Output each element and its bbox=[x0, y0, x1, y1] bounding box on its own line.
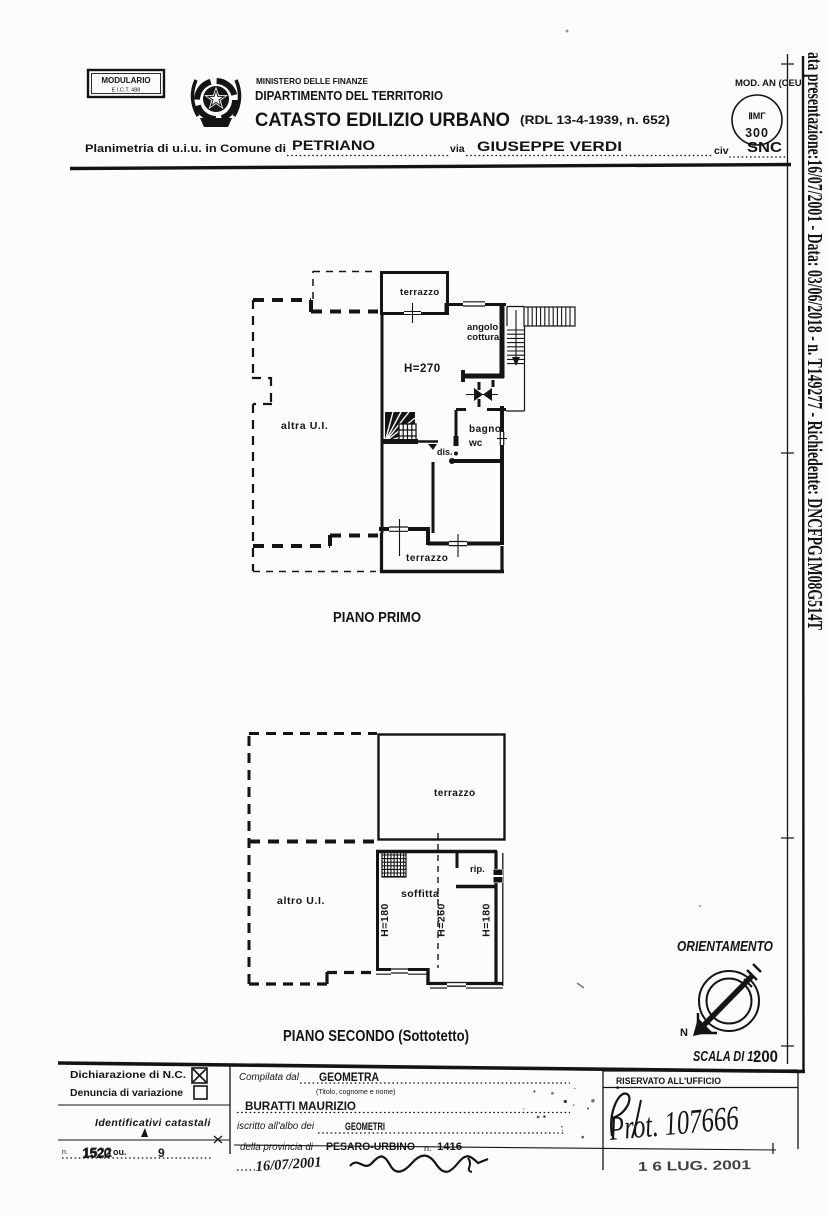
svg-text:altra U.I.: altra U.I. bbox=[281, 420, 328, 432]
svg-text:cottura: cottura bbox=[467, 332, 500, 343]
svg-text:H=260: H=260 bbox=[436, 903, 448, 937]
svg-text:BURATTI MAURIZIO: BURATTI MAURIZIO bbox=[245, 1099, 356, 1113]
svg-text:1 6 LUG. 2001: 1 6 LUG. 2001 bbox=[638, 1157, 751, 1174]
svg-text:E I.C.T. 488: E I.C.T. 488 bbox=[112, 88, 141, 94]
svg-text:MINISTERO DELLE FINANZE: MINISTERO DELLE FINANZE bbox=[256, 76, 368, 86]
svg-text:SNC: SNC bbox=[747, 139, 782, 156]
svg-text:H=180: H=180 bbox=[481, 903, 493, 937]
svg-text:(Titolo, cognome e nome): (Titolo, cognome e nome) bbox=[316, 1089, 396, 1096]
svg-text:1522: 1522 bbox=[83, 1145, 112, 1160]
svg-text:PETRIANO: PETRIANO bbox=[292, 138, 375, 153]
svg-text:RISERVATO ALL'UFFICIO: RISERVATO ALL'UFFICIO bbox=[616, 1076, 721, 1087]
svg-text:Planimetria di u.i.u. in Comun: Planimetria di u.i.u. in Comune di bbox=[85, 143, 286, 155]
svg-text:ou.: ou. bbox=[113, 1147, 127, 1157]
svg-text:wc: wc bbox=[468, 438, 483, 449]
svg-text:soffitta: soffitta bbox=[401, 888, 439, 900]
svg-text:Compilata dal: Compilata dal bbox=[239, 1072, 300, 1083]
svg-text:dis.: dis. bbox=[437, 447, 453, 457]
svg-text:GIUSEPPE VERDI: GIUSEPPE VERDI bbox=[477, 139, 622, 154]
svg-text:della provincia di: della provincia di bbox=[240, 1142, 314, 1153]
svg-text:200: 200 bbox=[753, 1047, 778, 1066]
svg-text:Identificativi catastali: Identificativi catastali bbox=[95, 1117, 211, 1129]
svg-text:terrazzo: terrazzo bbox=[400, 287, 440, 298]
svg-text:rip.: rip. bbox=[470, 864, 485, 875]
svg-text:ata presentazione:16/07/2001 -: ata presentazione:16/07/2001 - Data: 03/… bbox=[803, 52, 827, 630]
svg-text:16/07/2001: 16/07/2001 bbox=[255, 1154, 322, 1175]
svg-text:altro U.I.: altro U.I. bbox=[277, 895, 325, 907]
svg-text:PIANO SECONDO (Sottotetto): PIANO SECONDO (Sottotetto) bbox=[283, 1028, 469, 1045]
svg-text:MODULARIO: MODULARIO bbox=[101, 76, 150, 85]
svg-text:terrazzo: terrazzo bbox=[434, 788, 476, 799]
svg-text:H=270: H=270 bbox=[404, 363, 441, 375]
svg-text:ⅡΜΓ: ⅡΜΓ bbox=[748, 111, 766, 121]
svg-text:DIPARTIMENTO DEL TERRITORIO: DIPARTIMENTO DEL TERRITORIO bbox=[255, 88, 443, 103]
svg-text:H=180: H=180 bbox=[379, 903, 391, 937]
svg-text:300: 300 bbox=[745, 126, 769, 140]
svg-text:iscritto all'albo dei: iscritto all'albo dei bbox=[237, 1121, 315, 1132]
svg-text:MOD. AN (CEU: MOD. AN (CEU bbox=[735, 78, 802, 89]
svg-text:9: 9 bbox=[158, 1146, 165, 1160]
svg-text:(RDL 13-4-1939, n. 652): (RDL 13-4-1939, n. 652) bbox=[520, 115, 670, 127]
svg-text:civ: civ bbox=[714, 145, 729, 157]
svg-text:SCALA DI 1:: SCALA DI 1: bbox=[693, 1049, 757, 1065]
svg-text:N: N bbox=[680, 1027, 688, 1039]
svg-text:1416: 1416 bbox=[437, 1141, 462, 1153]
svg-text:CATASTO EDILIZIO URBANO: CATASTO EDILIZIO URBANO bbox=[255, 110, 510, 131]
svg-text:terrazzo: terrazzo bbox=[406, 553, 448, 564]
svg-text:Denuncia di variazione: Denuncia di variazione bbox=[70, 1088, 184, 1099]
svg-text:Dichiarazione di N.C.: Dichiarazione di N.C. bbox=[70, 1070, 186, 1081]
svg-text:PESARO-URBINO: PESARO-URBINO bbox=[326, 1141, 415, 1153]
svg-text:n.: n. bbox=[62, 1149, 68, 1156]
svg-text:PIANO PRIMO: PIANO PRIMO bbox=[333, 609, 421, 626]
svg-text:via: via bbox=[450, 143, 465, 155]
svg-text:n.: n. bbox=[424, 1143, 432, 1153]
svg-text:ORIENTAMENTO: ORIENTAMENTO bbox=[677, 939, 774, 955]
svg-text:bagno: bagno bbox=[469, 424, 502, 435]
svg-text:GEOMETRI: GEOMETRI bbox=[345, 1121, 385, 1133]
svg-text:GEOMETRA: GEOMETRA bbox=[319, 1072, 379, 1084]
